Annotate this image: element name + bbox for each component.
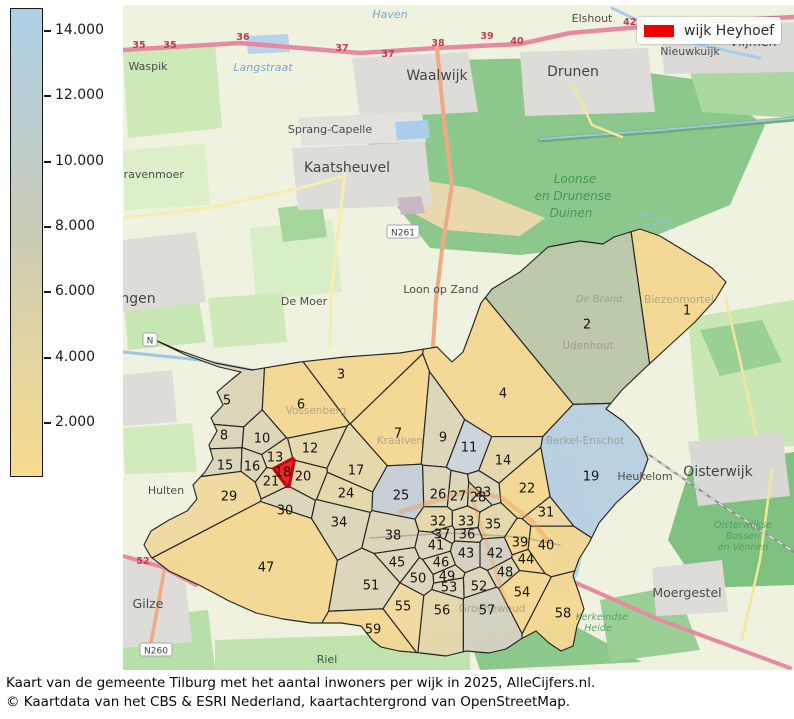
district-number-52: 52 <box>471 580 488 595</box>
district-number-26: 26 <box>430 488 447 503</box>
colorbar-tick-label: 12.000 <box>55 87 104 103</box>
place-label: Nieuwkuijk <box>660 45 720 58</box>
place-label: Dongen <box>123 291 156 307</box>
colorbar-tick-label: 4.000 <box>55 349 95 365</box>
place-label: en Vennen <box>718 542 769 553</box>
district-number-53: 53 <box>441 581 458 596</box>
road-exit-label: 39 <box>480 31 493 42</box>
district-number-41: 41 <box>428 539 445 554</box>
district-number-2: 2 <box>583 318 591 333</box>
road-exit-label: 35 <box>163 40 176 51</box>
place-label: Haven <box>372 8 407 21</box>
place-label: Kerkeindse <box>576 612 629 623</box>
place-label: Waspik <box>128 60 168 73</box>
caption-line2: © Kaartdata van het CBS & ESRI Nederland… <box>6 693 595 712</box>
district-number-8: 8 <box>220 429 228 444</box>
colorbar-gradient <box>10 8 43 477</box>
place-label: s-Gravenmoer <box>123 168 184 181</box>
district-number-30: 30 <box>277 504 294 519</box>
district-number-36: 36 <box>459 528 476 543</box>
district-number-40: 40 <box>538 539 555 554</box>
place-label: en Drunense <box>535 189 612 203</box>
map-canvas[interactable]: WaspikWaalwijkDrunenElshoutNieuwkuijkVli… <box>123 5 794 670</box>
road-exit-label: 40 <box>510 36 524 47</box>
district-number-59: 59 <box>365 623 382 638</box>
district-number-43: 43 <box>458 547 475 562</box>
place-label: Moergestel <box>652 585 721 600</box>
place-label: Duinen <box>550 206 593 220</box>
caption: Kaart van de gemeente Tilburg met het aa… <box>6 674 595 711</box>
district-number-10: 10 <box>254 432 271 447</box>
place-label: Waalwijk <box>406 68 468 84</box>
place-label: Oisterwijkse <box>714 520 772 531</box>
district-number-22: 22 <box>519 482 536 497</box>
district-number-50: 50 <box>410 572 427 587</box>
road-ref-badge: N261 <box>391 229 415 239</box>
place-label: Vossenberg <box>286 405 347 417</box>
district-number-55: 55 <box>395 600 412 615</box>
road-ref-badge: N <box>147 337 154 347</box>
district-number-11: 11 <box>461 441 478 456</box>
district-number-7: 7 <box>394 427 402 442</box>
colorbar-tick-mark <box>44 357 51 359</box>
district-number-42: 42 <box>487 547 504 562</box>
place-label: De Moer <box>281 295 328 308</box>
place-label: Gilze <box>133 596 164 611</box>
district-number-25: 25 <box>393 489 410 504</box>
place-label: Heukelom <box>617 470 672 483</box>
place-label: De Brand <box>576 294 623 305</box>
page: 14.00012.00010.0008.0006.0004.0002.000 W… <box>0 0 794 719</box>
district-number-44: 44 <box>518 553 535 568</box>
place-label: Oisterwijk <box>683 464 753 480</box>
colorbar-tick-label: 2.000 <box>55 414 95 430</box>
district-number-27: 27 <box>450 490 467 505</box>
district-number-5: 5 <box>223 394 231 409</box>
district-number-20: 20 <box>295 470 312 485</box>
district-number-1: 1 <box>683 304 691 319</box>
district-number-51: 51 <box>363 579 380 594</box>
place-label: Drunen <box>547 64 599 80</box>
place-label: Hulten <box>148 484 184 497</box>
place-label: Elshout <box>572 12 613 25</box>
district-number-38: 38 <box>385 529 402 544</box>
colorbar-tick-label: 6.000 <box>55 283 95 299</box>
district-number-46: 46 <box>433 556 450 571</box>
place-label: Udenhout <box>562 340 613 352</box>
place-label: Langstraat <box>233 61 293 74</box>
district-number-13: 13 <box>267 451 284 466</box>
district-number-57: 57 <box>479 604 496 619</box>
colorbar-tick-mark <box>44 422 51 424</box>
district-number-31: 31 <box>538 506 555 521</box>
district-number-24: 24 <box>338 487 355 502</box>
colorbar-tick-label: 10.000 <box>55 153 104 169</box>
district-number-9: 9 <box>439 431 447 446</box>
district-number-16: 16 <box>244 460 261 475</box>
map-svg[interactable]: WaspikWaalwijkDrunenElshoutNieuwkuijkVli… <box>123 5 794 670</box>
place-label: Sprang-Capelle <box>288 123 372 136</box>
district-number-48: 48 <box>497 566 514 581</box>
road-exit-label: 52 <box>136 556 149 567</box>
colorbar-tick-mark <box>44 226 51 228</box>
district-number-28: 28 <box>470 491 487 506</box>
colorbar-tick-mark <box>44 95 51 97</box>
caption-line1: Kaart van de gemeente Tilburg met het aa… <box>6 674 595 693</box>
colorbar-tick-label: 14.000 <box>55 22 104 38</box>
district-number-54: 54 <box>514 586 531 601</box>
place-label: Loon op Zand <box>403 283 478 296</box>
district-number-47: 47 <box>258 561 275 576</box>
road-exit-label: 35 <box>132 40 145 51</box>
colorbar-tick-mark <box>44 291 51 293</box>
district-number-21: 21 <box>263 475 280 490</box>
district-number-34: 34 <box>331 516 348 531</box>
district-number-39: 39 <box>512 536 529 551</box>
place-label: Berkel-Enschot <box>546 435 625 447</box>
place-label: Heide <box>584 623 612 634</box>
district-number-17: 17 <box>348 464 365 479</box>
colorbar-tick-mark <box>44 161 51 163</box>
colorbar-tick-label: 8.000 <box>55 218 95 234</box>
road-exit-label: 38 <box>431 38 445 49</box>
district-number-12: 12 <box>302 442 319 457</box>
district-number-29: 29 <box>221 490 238 505</box>
legend-label: wijk Heyhoef <box>684 23 774 39</box>
district-cell-56[interactable] <box>418 590 463 656</box>
district-number-19: 19 <box>583 470 600 485</box>
district-number-58: 58 <box>555 607 572 622</box>
legend-color-swatch <box>644 25 674 37</box>
road-ref-badge: N260 <box>144 647 168 657</box>
district-number-6: 6 <box>297 398 305 413</box>
district-number-3: 3 <box>337 368 345 383</box>
road-exit-label: 36 <box>236 32 250 43</box>
road-exit-label: 37 <box>335 43 348 54</box>
colorbar-tick-mark <box>44 30 51 32</box>
place-label: Biezenmortel <box>644 294 714 306</box>
district-number-14: 14 <box>495 454 512 469</box>
road-exit-label: 37 <box>381 49 394 60</box>
place-label: Loonse <box>554 172 597 186</box>
district-number-15: 15 <box>217 459 234 474</box>
district-number-35: 35 <box>485 518 502 533</box>
place-label: Kaatsheuvel <box>304 160 390 176</box>
district-number-56: 56 <box>434 604 451 619</box>
district-number-4: 4 <box>499 387 507 402</box>
place-label: Riel <box>317 653 338 666</box>
place-label: Bossen <box>726 531 760 542</box>
district-number-45: 45 <box>389 556 406 571</box>
map-legend: wijk Heyhoef <box>637 17 781 44</box>
